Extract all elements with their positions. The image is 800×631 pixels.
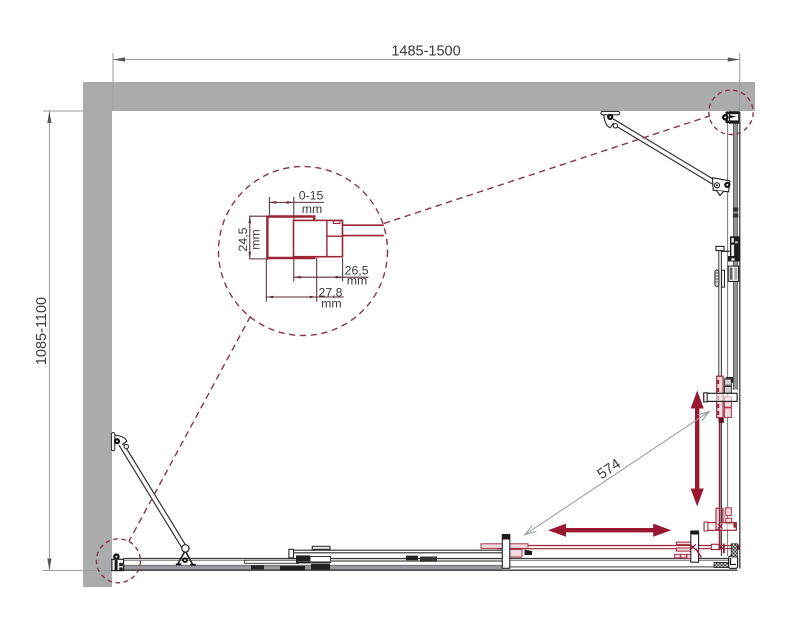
svg-text:574: 574 <box>595 456 624 483</box>
svg-text:0-15: 0-15 <box>299 189 324 203</box>
svg-text:mm: mm <box>347 274 368 288</box>
svg-text:mm: mm <box>321 296 342 310</box>
svg-text:1085-1100: 1085-1100 <box>34 297 50 365</box>
svg-text:mm: mm <box>248 229 262 250</box>
svg-text:1485-1500: 1485-1500 <box>391 44 460 60</box>
svg-text:mm: mm <box>302 202 323 216</box>
